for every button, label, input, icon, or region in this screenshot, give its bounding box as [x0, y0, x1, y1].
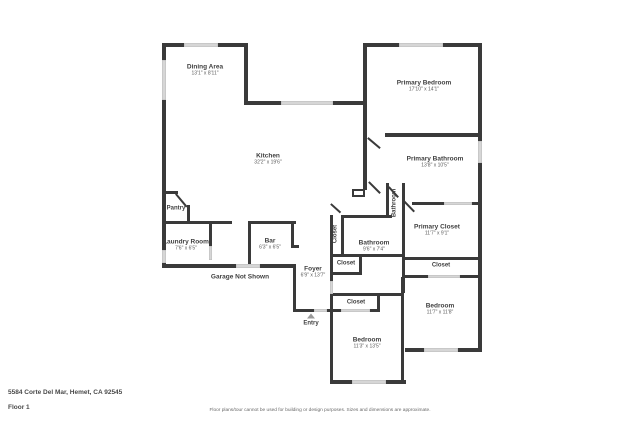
room-label-bar: Bar 6'3" x 6'5": [259, 238, 281, 251]
room-label-closet-right: Closet: [432, 263, 450, 270]
window: [428, 275, 460, 278]
room-label-primary-bathroom: Primary Bathroom 13'8" x 10'5": [407, 156, 464, 169]
room-label-primary-bedroom: Primary Bedroom 17'10" x 14'1": [397, 80, 452, 93]
wall: [330, 254, 405, 257]
wall: [344, 215, 392, 218]
room-label-bathroom: Bathroom 9'6" x 7'4": [359, 240, 390, 253]
wall-column: [352, 189, 365, 197]
wall: [385, 133, 482, 137]
window: [424, 348, 458, 352]
wall: [363, 43, 367, 190]
wall: [187, 205, 190, 224]
entry-label: Entry: [303, 321, 318, 328]
wall: [244, 43, 248, 105]
wall: [478, 210, 482, 352]
wall: [250, 221, 296, 224]
room-label-closet-rotated: Closet: [333, 225, 340, 243]
room-label-pantry: Pantry: [167, 206, 186, 213]
garage-door: [236, 264, 260, 268]
wall: [293, 309, 333, 312]
wall: [291, 245, 299, 248]
floor-plan: Dining Area 13'1" x 8'11" Kitchen 32'2" …: [0, 0, 640, 427]
room-label-bedroom-right: Bedroom 11'7" x 11'8": [426, 303, 455, 316]
door-opening: [330, 281, 333, 294]
window: [162, 250, 166, 263]
window: [399, 43, 443, 47]
window: [352, 380, 386, 384]
wall: [330, 272, 362, 275]
window: [444, 202, 472, 205]
door-opening: [209, 246, 212, 260]
door-swing: [368, 137, 381, 148]
wall: [341, 215, 344, 254]
room-label-laundry: Laundry Room 7'6" x 6'5": [163, 239, 209, 252]
room-label-bathroom-rotated: Bathroom: [392, 189, 399, 217]
door-swing: [368, 181, 380, 193]
window: [281, 101, 333, 105]
entry-arrow-icon: [307, 314, 315, 319]
wall: [330, 293, 403, 296]
room-label-bedroom-left: Bedroom 11'3" x 13'5": [353, 337, 382, 350]
door-swing: [330, 203, 341, 213]
wall: [293, 264, 296, 312]
closet-opening: [341, 309, 370, 312]
garage-note: Garage Not Shown: [211, 274, 269, 281]
wall: [162, 221, 232, 224]
room-label-closet-hall: Closet: [337, 261, 355, 268]
window: [162, 60, 166, 100]
wall: [260, 264, 296, 268]
window: [478, 141, 482, 163]
wall: [209, 221, 212, 248]
room-label-primary-closet: Primary Closet 11'7" x 9'1": [414, 224, 460, 237]
wall: [405, 257, 482, 260]
room-label-kitchen: Kitchen 32'2" x 19'6": [254, 153, 281, 166]
property-address: 5584 Corte Del Mar, Hemet, CA 92545: [8, 389, 122, 396]
wall: [162, 264, 236, 268]
wall: [330, 279, 333, 384]
room-label-closet-bedroom: Closet: [347, 300, 365, 307]
wall: [478, 43, 482, 210]
wall: [248, 221, 251, 267]
entry-door: [314, 309, 327, 312]
disclaimer-text: Floor plans/tour cannot be used for buil…: [0, 408, 640, 413]
room-label-dining-area: Dining Area 13'1" x 8'11": [187, 64, 223, 77]
wall: [291, 221, 294, 248]
window: [184, 43, 218, 47]
room-label-foyer: Foyer 6'9" x 13'7": [301, 266, 326, 279]
